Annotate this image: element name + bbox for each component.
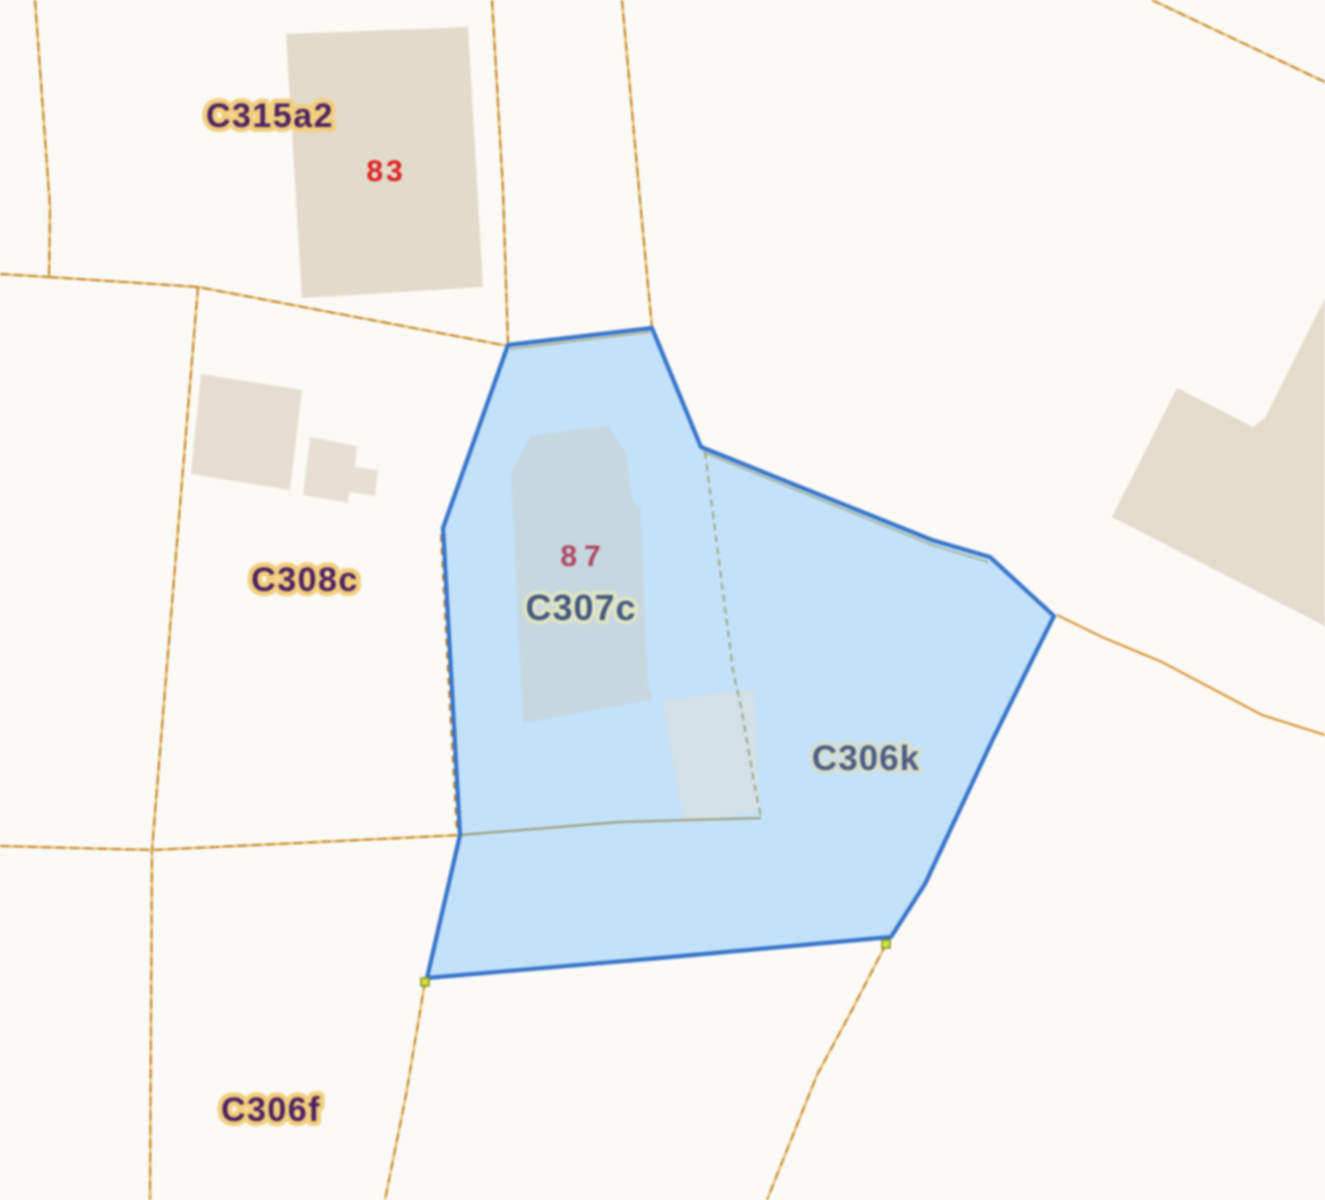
svg-text:C306f: C306f [221,1091,321,1129]
svg-text:83: 83 [366,155,405,188]
svg-text:87: 87 [560,540,607,573]
svg-text:C307c: C307c [525,587,636,628]
svg-text:C306k: C306k [812,739,920,778]
svg-text:C315a2: C315a2 [206,97,334,135]
svg-text:C308c: C308c [251,561,359,599]
